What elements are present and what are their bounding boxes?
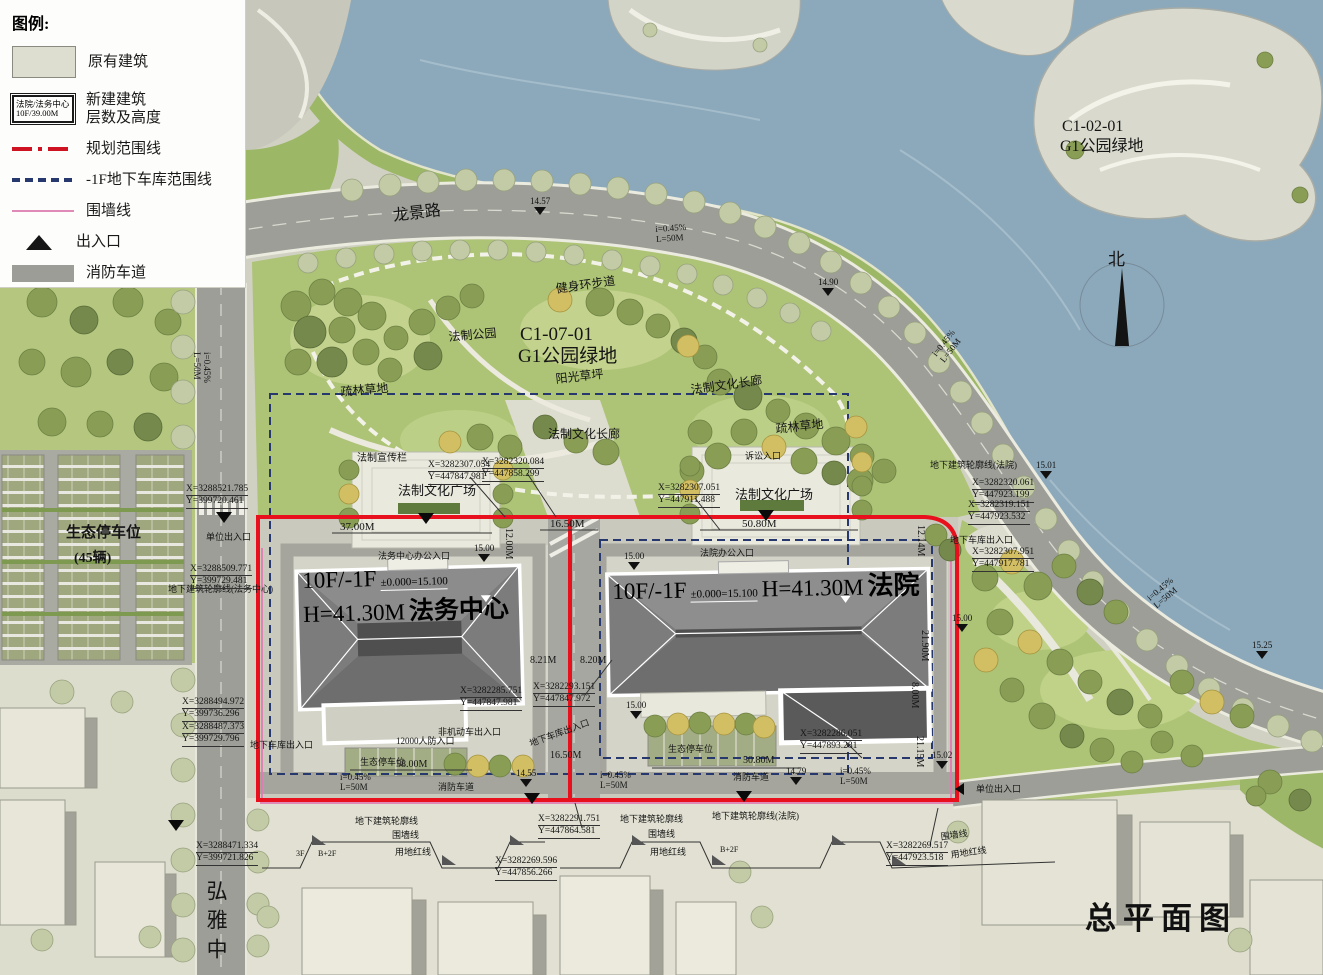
legend-item-existing: 原有建筑 — [12, 46, 233, 78]
entrance-triangle-west-road — [216, 512, 232, 523]
label-fire-lane-left: 消防车道 — [438, 782, 474, 792]
coord-p16: X=3282319.151Y=447923.532 — [968, 500, 1030, 525]
label-litigation-entrance: 诉讼入口 — [745, 451, 781, 461]
fire-lane-swatch — [12, 265, 74, 282]
label-north: 北 — [1108, 250, 1125, 270]
legend-item-fire-lane: 消防车道 — [12, 264, 233, 282]
planning-boundary-swatch — [12, 147, 74, 151]
label-wall-line-2: 围墙线 — [648, 829, 675, 839]
court-level: ±0.000=15.100 — [690, 587, 757, 602]
coord-p8: X=3282307.051Y=447911.488 — [658, 483, 720, 508]
existing-building-swatch — [12, 46, 76, 78]
elevation-15-00-a: 15.00 — [474, 543, 494, 562]
site-plan-page: 龙景路 弘雅中 C1-07-01 G1公园绿地 C1-02-01 G1公园绿地 … — [0, 0, 1323, 975]
label-garage-entrance-east: 地下车库出入口 — [950, 535, 1013, 545]
court-roof-labels: 10F/-1F ±0.000=15.100 H=41.30M 法院 — [612, 564, 934, 690]
coord-p11: X=3282286.051Y=447893.281 — [800, 729, 862, 754]
legend-panel: 图例: 原有建筑 法院/法务中心 10F/39.00M 新建建筑 层数及高度 规… — [0, 0, 246, 288]
legend-title: 图例: — [12, 10, 233, 34]
dim-1214m: 12.14M — [915, 525, 927, 556]
dim-1200m: 12.00M — [503, 528, 515, 559]
label-culture-plaza-right: 法制文化广场 — [735, 488, 813, 503]
coord-p14: X=3282269.517Y=447923.518 — [886, 841, 948, 866]
coord-p9: X=3282285.751Y=447847.981 — [460, 686, 522, 711]
coord-p3: X=3288494.972Y=399736.296 — [182, 697, 244, 722]
elevation-15-02: 15.02 — [932, 750, 952, 769]
label-island-code: C1-02-01 — [1062, 118, 1123, 136]
dim-1650m-bottom: 16.50M — [550, 750, 581, 762]
legend-item-planning-boundary: 规划范围线 — [12, 140, 233, 158]
legend-item-wall: 围墙线 — [12, 202, 233, 220]
legal-center-floors: 10F/-1F — [302, 566, 377, 593]
entrance-triangle-left-plaza — [418, 513, 434, 524]
label-underground-outline-court-2: 地下建筑轮廓线(法院) — [712, 811, 799, 821]
label-eco-parking-count: (45辆) — [74, 551, 111, 567]
label-court-office-entrance: 法院办公入口 — [700, 548, 754, 558]
coord-p6: X=3282307.054Y=447847.981 — [428, 460, 490, 485]
label-bulletin-board: 法制宣传栏 — [357, 453, 407, 465]
dim-820m: 8.20M — [580, 655, 606, 667]
dim-821m: 8.21M — [530, 655, 556, 667]
elevation-15-00-b: 15.00 — [624, 551, 644, 570]
entrance-triangle-south-1 — [524, 793, 540, 804]
elevation-14-90: 14.90 — [818, 277, 838, 296]
coord-p17: X=3282307.951Y=447917.781 — [972, 547, 1034, 572]
elevation-14-55: 14.55 — [516, 768, 536, 787]
coord-p2: X=3288509.771Y=399729.481 — [190, 564, 252, 589]
label-fire-lane-right: 消防车道 — [733, 772, 769, 782]
legal-center-level: ±0.000=15.100 — [380, 575, 448, 591]
wall-line-swatch — [12, 210, 74, 212]
coord-p7: X=3282320.084Y=447858.299 — [482, 457, 544, 482]
court-floors: 10F/-1F — [612, 578, 687, 604]
coord-p12: X=3282291.751Y=447864.581 — [538, 814, 600, 839]
label-red-line-2: 用地红线 — [650, 847, 686, 857]
dim-5800m: 58.00M — [396, 759, 427, 771]
dim-5080m-bottom: 50.80M — [743, 755, 774, 767]
slope-site-mid: i=0.45%L=50M — [600, 770, 631, 791]
coord-p1: X=3288521.785Y=399720.461 — [186, 484, 248, 509]
legal-center-roof-labels: 10F/-1F ±0.000=15.100 H=41.30M 法务中心 — [302, 562, 530, 688]
label-unit-entrance-east: 单位出入口 — [976, 784, 1021, 794]
label-wall-line-1: 围墙线 — [392, 830, 419, 840]
label-unit-entrance-west: 单位出入口 — [206, 532, 251, 542]
coord-p10: X=3282293.151Y=447847.972 — [533, 682, 595, 707]
label-island-name: G1公园绿地 — [1060, 138, 1144, 156]
label-park-name: G1公园绿地 — [518, 346, 617, 368]
entrance-triangle-hongya — [168, 820, 184, 831]
elevation-15-00-d: 15.00 — [626, 700, 646, 719]
label-bldg-b2f-2: B+2F — [720, 845, 738, 854]
entrance-triangle-south-2 — [736, 791, 752, 802]
legal-center-name: 法务中心 — [409, 596, 510, 626]
dim-37m: 37.00M — [340, 521, 375, 534]
label-eco-parking: 生态停车位 — [66, 525, 141, 542]
court-name: 法院 — [867, 571, 920, 601]
legend-item-entrance: 出入口 — [12, 233, 233, 251]
legend-item-garage-boundary: -1F地下车库范围线 — [12, 171, 233, 189]
level-symbol-left — [481, 595, 491, 602]
legend-item-new: 法院/法务中心 10F/39.00M 新建建筑 层数及高度 — [12, 91, 233, 127]
label-center-office-entrance: 法务中心办公入口 — [378, 551, 450, 561]
elevation-14-79: 14.79 — [786, 766, 806, 785]
coord-p13: X=3282269.596Y=447856.266 — [495, 856, 557, 881]
elevation-15-01: 15.01 — [1036, 460, 1056, 479]
entrance-swatch — [26, 235, 52, 250]
label-culture-corridor-2: 法制文化长廊 — [548, 428, 620, 442]
elevation-15-00-c: 15.00 — [952, 613, 972, 632]
label-underground-outline-1: 地下建筑轮廓线 — [355, 816, 418, 826]
label-garage-entrance-west: 地下车库出入口 — [250, 740, 313, 750]
label-culture-plaza-left: 法制文化广场 — [398, 484, 476, 499]
legal-center-height: H=41.30M — [303, 599, 405, 627]
slope-site-left: i=0.45%L=50M — [340, 772, 371, 793]
label-red-line-1: 用地红线 — [395, 847, 431, 857]
new-building-swatch: 法院/法务中心 10F/39.00M — [12, 95, 74, 123]
entrance-triangle-right-plaza — [758, 510, 774, 521]
garage-boundary-swatch — [12, 178, 74, 182]
elevation-15-25: 15.25 — [1252, 640, 1272, 659]
label-civil-defense-entrance: 12000人防入口 — [396, 736, 455, 746]
elevation-14-57: 14.57 — [530, 196, 550, 215]
slope-site-right: i=0.45%L=50M — [840, 766, 871, 787]
slope-road-top: i=0.45%L=50M — [655, 222, 687, 245]
level-symbol-right — [840, 596, 850, 603]
label-hongya-road: 弘雅中 — [204, 880, 228, 967]
entrance-triangle-east — [955, 783, 964, 795]
coord-p4: X=3288487.373Y=399729.796 — [182, 722, 244, 747]
coord-p5: X=3288471.334Y=399721.826 — [196, 841, 258, 866]
page-title: 总平面图 — [1085, 893, 1237, 938]
label-p-parking-right: 生态停车位 — [668, 744, 713, 754]
label-park-code: C1-07-01 — [520, 324, 593, 346]
label-underground-outline-court-1: 地下建筑轮廓线(法院) — [930, 460, 1017, 470]
dim-2115m: 21.15M — [914, 736, 926, 767]
dim-1650m-top: 16.50M — [550, 518, 585, 531]
label-bldg-3f: 3F — [296, 849, 304, 858]
slope-west-road: i=0.45%L=50M — [191, 352, 212, 383]
dim-800m: 8.00M — [909, 682, 921, 708]
label-bldg-b2f-1: B+2F — [318, 849, 336, 858]
label-underground-outline-2: 地下建筑轮廓线 — [620, 814, 683, 824]
